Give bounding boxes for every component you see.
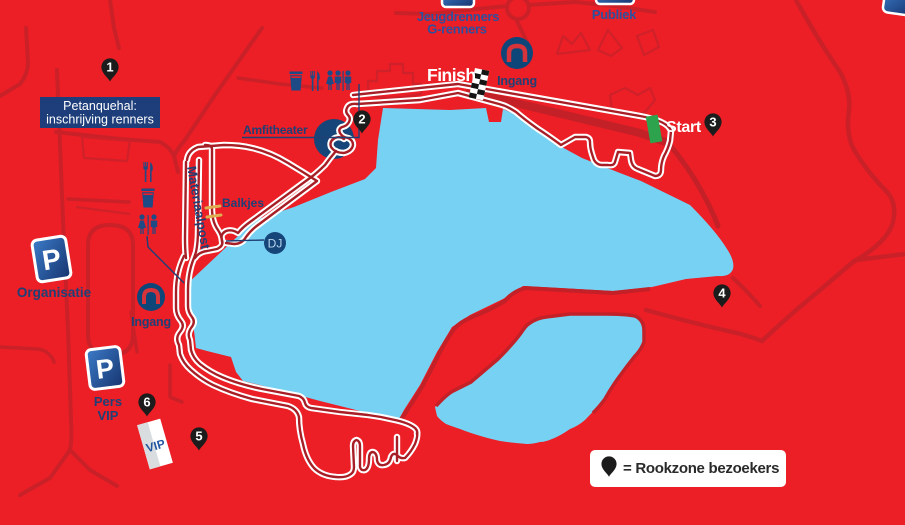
svg-text:3: 3 xyxy=(709,115,716,130)
svg-text:Balkjes: Balkjes xyxy=(222,196,264,210)
svg-text:6: 6 xyxy=(143,395,150,410)
svg-text:Start: Start xyxy=(666,119,702,136)
svg-text:Amfitheater: Amfitheater xyxy=(243,123,308,137)
svg-text:G-renners: G-renners xyxy=(427,22,487,37)
svg-text:Petanquehal:: Petanquehal: xyxy=(63,99,137,113)
svg-text:P: P xyxy=(94,353,116,385)
svg-text:Ingang: Ingang xyxy=(497,74,537,88)
svg-text:DJ: DJ xyxy=(268,237,283,251)
svg-text:4: 4 xyxy=(718,286,726,301)
svg-text:Organisatie: Organisatie xyxy=(17,285,92,300)
svg-text:Finish: Finish xyxy=(427,65,476,85)
svg-text:VIP: VIP xyxy=(98,408,119,423)
svg-text:5: 5 xyxy=(195,429,202,444)
svg-text:Ingang: Ingang xyxy=(131,315,171,329)
svg-text:inschrijving renners: inschrijving renners xyxy=(46,113,154,127)
svg-text:2: 2 xyxy=(358,112,365,127)
svg-text:= Rookzone bezoekers: = Rookzone bezoekers xyxy=(623,460,779,477)
svg-text:Publiek: Publiek xyxy=(592,7,637,22)
svg-text:Pers: Pers xyxy=(94,394,122,409)
svg-text:1: 1 xyxy=(106,60,113,75)
